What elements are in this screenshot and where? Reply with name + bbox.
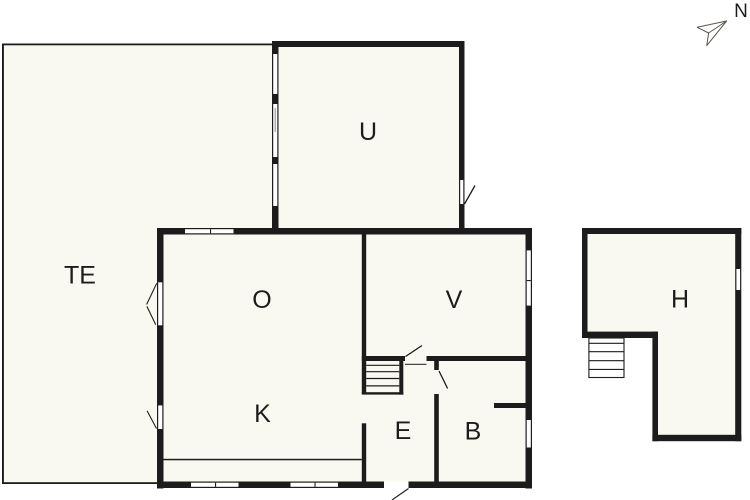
svg-text:H: H bbox=[671, 286, 689, 314]
svg-text:B: B bbox=[465, 418, 482, 446]
svg-text:E: E bbox=[395, 417, 412, 445]
svg-text:TE: TE bbox=[64, 262, 96, 290]
svg-text:U: U bbox=[359, 118, 377, 146]
svg-text:N: N bbox=[734, 1, 748, 22]
svg-text:K: K bbox=[254, 400, 271, 428]
svg-text:V: V bbox=[446, 286, 463, 314]
svg-text:O: O bbox=[252, 286, 271, 314]
